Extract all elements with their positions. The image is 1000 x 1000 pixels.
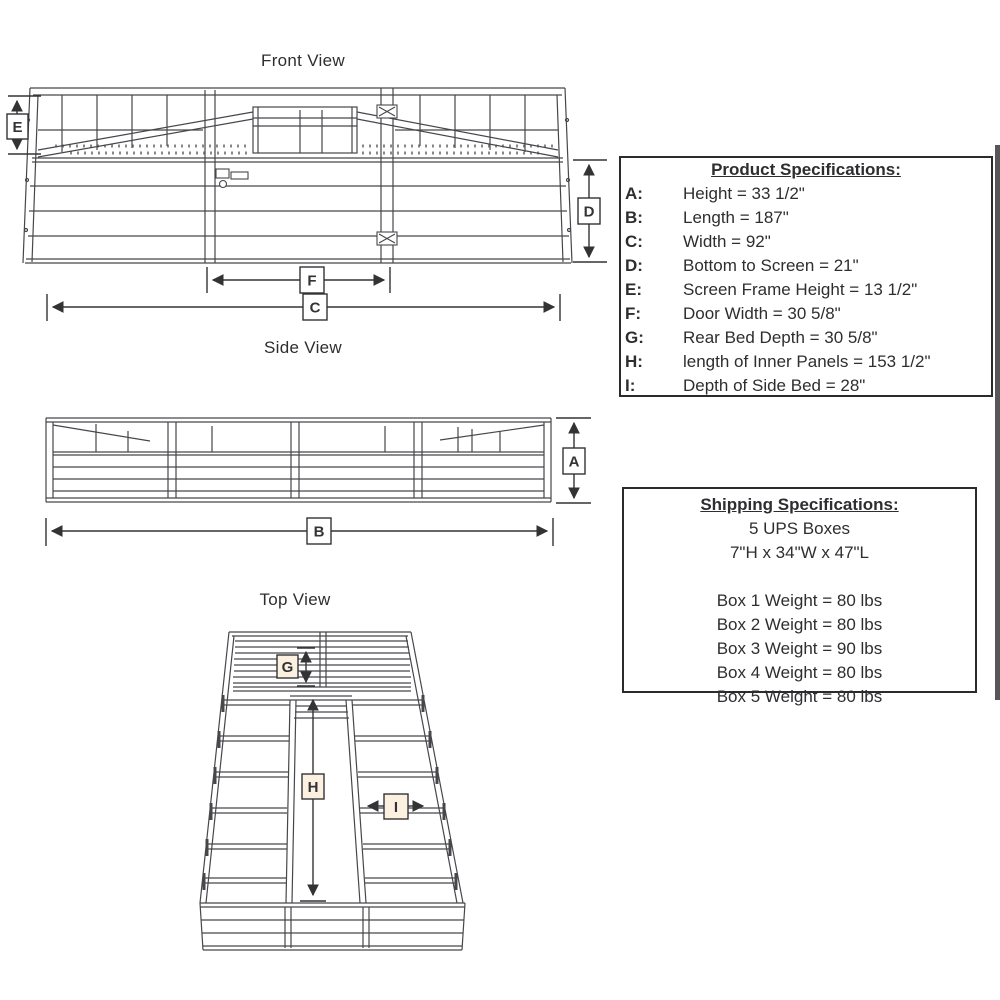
- box-weight-line: Box 3 Weight = 90 lbs: [624, 637, 975, 661]
- shipping-specs-title: Shipping Specifications:: [624, 493, 975, 517]
- dim-label-b: B: [314, 524, 325, 541]
- spec-value: Door Width = 30 5/8": [683, 302, 841, 326]
- spec-row-h: H: length of Inner Panels = 153 1/2": [621, 350, 991, 374]
- spec-value: length of Inner Panels = 153 1/2": [683, 350, 931, 374]
- top-view-title: Top View: [220, 590, 370, 610]
- spec-row-c: C: Width = 92": [621, 230, 991, 254]
- dim-label-g: G: [282, 659, 294, 676]
- page-edge-artifact: [995, 145, 1000, 700]
- spec-key: A:: [621, 182, 683, 206]
- front-structure: [23, 88, 572, 263]
- dim-label-f: F: [307, 273, 316, 290]
- product-specifications-box: Product Specifications: A: Height = 33 1…: [619, 156, 993, 397]
- spec-row-a: A: Height = 33 1/2": [621, 182, 991, 206]
- dim-label-d: D: [584, 204, 595, 221]
- spec-key: C:: [621, 230, 683, 254]
- front-view-title: Front View: [228, 51, 378, 71]
- side-structure: [46, 418, 551, 502]
- box-weight-line: Box 1 Weight = 80 lbs: [624, 589, 975, 613]
- spec-row-f: F: Door Width = 30 5/8": [621, 302, 991, 326]
- box-weight-line: Box 4 Weight = 80 lbs: [624, 661, 975, 685]
- dim-label-h: H: [308, 779, 319, 796]
- box-weight-line: Box 2 Weight = 80 lbs: [624, 613, 975, 637]
- top-view-drawing: G H I: [150, 615, 490, 965]
- spec-row-b: B: Length = 187": [621, 206, 991, 230]
- box-weight-line: Box 5 Weight = 80 lbs: [624, 685, 975, 709]
- spec-key: H:: [621, 350, 683, 374]
- shipping-specifications-box: Shipping Specifications: 5 UPS Boxes 7"H…: [622, 487, 977, 693]
- spec-row-d: D: Bottom to Screen = 21": [621, 254, 991, 278]
- dim-label-e: E: [12, 119, 22, 136]
- side-view-title: Side View: [228, 338, 378, 358]
- spec-key: E:: [621, 278, 683, 302]
- spec-value: Height = 33 1/2": [683, 182, 805, 206]
- dim-f: [207, 267, 390, 293]
- shipping-summary-line: 5 UPS Boxes: [624, 517, 975, 541]
- spec-key: G:: [621, 326, 683, 350]
- dim-label-a: A: [569, 454, 580, 471]
- top-structure: [200, 632, 465, 950]
- spec-row-g: G: Rear Bed Depth = 30 5/8": [621, 326, 991, 350]
- spacer: [624, 565, 975, 589]
- spec-key: D:: [621, 254, 683, 278]
- dim-h: [300, 700, 326, 901]
- dim-label-c: C: [310, 300, 321, 317]
- spec-key: I:: [621, 374, 683, 398]
- spec-key: B:: [621, 206, 683, 230]
- dim-b: [46, 518, 553, 546]
- side-view-drawing: A B: [0, 405, 620, 555]
- door-latch: [216, 169, 248, 188]
- spec-key: F:: [621, 302, 683, 326]
- shipping-summary-line: 7"H x 34"W x 47"L: [624, 541, 975, 565]
- dim-c: [47, 294, 560, 321]
- spec-value: Rear Bed Depth = 30 5/8": [683, 326, 878, 350]
- front-view-drawing: E D F C: [0, 80, 620, 330]
- spec-sheet-page: Front View: [0, 0, 1000, 1000]
- spec-value: Screen Frame Height = 13 1/2": [683, 278, 917, 302]
- spec-value: Length = 187": [683, 206, 789, 230]
- product-specs-title: Product Specifications:: [621, 158, 991, 182]
- spec-row-i: I: Depth of Side Bed = 28": [621, 374, 991, 398]
- dim-label-i: I: [394, 799, 398, 816]
- spec-value: Width = 92": [683, 230, 771, 254]
- spec-value: Depth of Side Bed = 28": [683, 374, 865, 398]
- spec-value: Bottom to Screen = 21": [683, 254, 859, 278]
- spec-row-e: E: Screen Frame Height = 13 1/2": [621, 278, 991, 302]
